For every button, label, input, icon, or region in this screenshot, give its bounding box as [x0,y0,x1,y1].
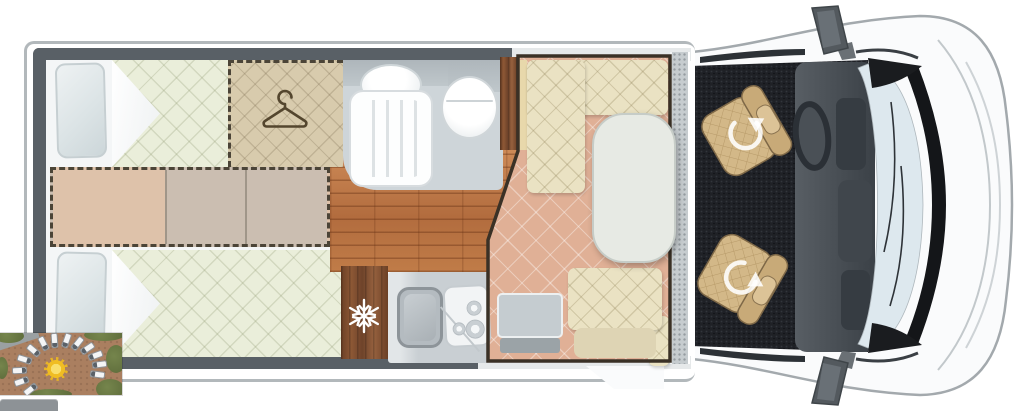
bush [96,379,122,395]
bush [84,333,122,341]
entry-bench [497,293,563,338]
motorhome-van [11,366,26,374]
motorhome-van [91,360,107,369]
sun-logo [44,357,68,381]
wardrobe [228,60,343,167]
burner-large [465,319,485,339]
divider [245,170,247,244]
dinette-bench-arm [527,60,585,193]
motorhome-van [50,333,58,348]
lower-console [841,270,870,330]
divider [165,170,167,244]
bathroom-wall-wood [500,57,517,150]
dealer-lot-photo-thumbnail[interactable] [0,333,122,395]
center-console [838,180,872,262]
hob-unit [442,284,491,348]
motorhome-van [36,335,49,352]
dinette-seat-back [574,328,656,358]
shelf-edge [518,60,527,150]
bush [30,389,72,395]
dinette-seat-cushion [568,268,662,330]
bush [0,357,8,379]
burner-medium [466,300,482,316]
instrument-cluster [836,98,866,170]
toilet [441,76,498,139]
motorhome-van [13,375,29,387]
shower-tray [349,90,433,187]
pillow-top [55,62,107,158]
motorhome-van [16,353,32,364]
bed-middle-section-dashed [50,167,330,247]
kitchen-sink [397,287,443,348]
entry-bench-back [500,338,560,353]
dinette-table [592,113,676,263]
bush [106,345,122,373]
motorhome-floorplan-stage [0,0,1024,411]
motorhome-van [89,370,105,379]
motorhome-van [25,342,41,357]
fridge-cabinet [341,266,388,359]
cut-off-badge[interactable] [0,399,58,411]
